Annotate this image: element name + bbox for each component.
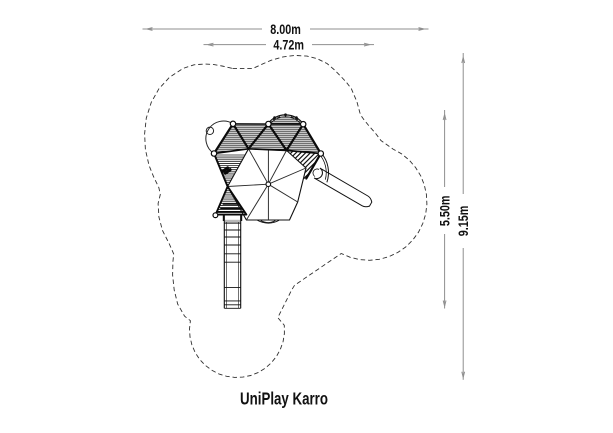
svg-text:5.50m: 5.50m	[437, 195, 452, 226]
svg-text:8.00m: 8.00m	[270, 22, 301, 37]
svg-text:4.72m: 4.72m	[273, 37, 304, 52]
svg-text:9.15m: 9.15m	[456, 206, 471, 237]
svg-text:UniPlay Karro: UniPlay Karro	[240, 390, 328, 409]
